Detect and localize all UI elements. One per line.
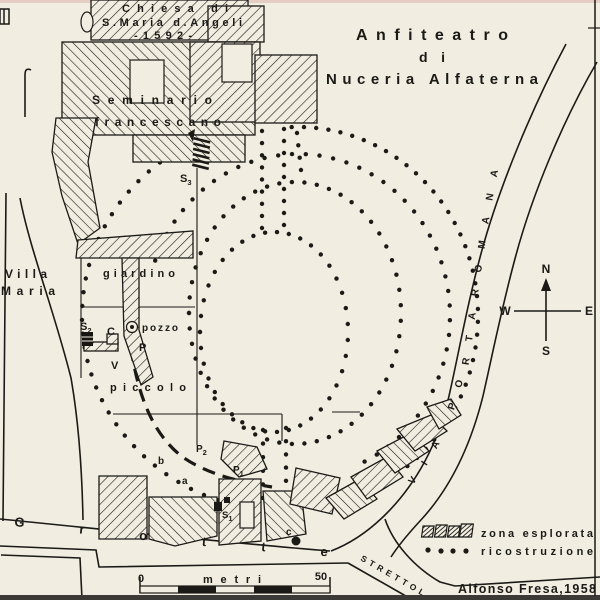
- reconstruction-dot: [295, 131, 299, 135]
- reconstruction-dot: [110, 212, 114, 216]
- reconstruction-dot: [431, 189, 435, 193]
- well-symbol: [127, 322, 138, 333]
- reconstruction-dot: [399, 303, 403, 307]
- reconstruction-dot: [349, 422, 353, 426]
- reconstruction-dot: [344, 354, 348, 358]
- reconstruction-dot: [87, 263, 91, 267]
- reconstruction-dot: [213, 396, 217, 400]
- reconstruction-dot: [334, 276, 338, 280]
- title-line-3: Nuceria Alfaterna: [326, 71, 539, 88]
- marker-a: a: [182, 476, 188, 487]
- reconstruction-dot: [253, 432, 257, 436]
- reconstruction-dot: [362, 138, 366, 142]
- reconstruction-dot: [412, 209, 416, 213]
- reconstruction-dot: [132, 444, 136, 448]
- reconstruction-dot: [436, 375, 440, 379]
- reconstruction-dot: [290, 152, 294, 156]
- reconstruction-dot: [231, 204, 235, 208]
- reconstruction-dot: [394, 349, 398, 353]
- scale-bar-body: [140, 586, 330, 593]
- reconstruction-dot: [473, 345, 477, 349]
- reconstruction-dot: [282, 223, 286, 227]
- reconstruction-dot: [206, 376, 210, 380]
- credit-label: Alfonso Fresa,1958: [458, 582, 596, 596]
- south-black-feature-2: [224, 497, 230, 503]
- reconstruction-dot: [476, 320, 480, 324]
- reconstruction-dot: [302, 180, 306, 184]
- scale-bar-segment: [178, 586, 216, 593]
- reconstruction-dot: [202, 362, 206, 366]
- reconstruction-dot: [459, 394, 463, 398]
- reconstruction-dot: [282, 187, 286, 191]
- reconstruction-dot: [240, 420, 244, 424]
- reconstruction-dot: [282, 199, 286, 203]
- reconstruction-dot: [445, 347, 449, 351]
- south-block-1: [99, 476, 147, 539]
- reconstruction-dot: [199, 314, 203, 318]
- reconstruction-dot: [309, 416, 313, 420]
- reconstruction-dot: [453, 221, 457, 225]
- reconstruction-dot: [100, 398, 104, 402]
- reconstruction-dot: [360, 413, 364, 417]
- reconstruction-dot: [349, 200, 353, 204]
- reconstruction-dot: [317, 153, 321, 157]
- reconstruction-dot: [315, 439, 319, 443]
- reconstruction-dot: [390, 258, 394, 262]
- map-page: Anfiteatro di Nuceria Alfaterna Chiesa d…: [0, 0, 600, 600]
- reconstruction-dot: [377, 390, 381, 394]
- reconstruction-dot: [338, 429, 342, 433]
- reconstruction-dot: [276, 153, 280, 157]
- reconstruction-dot: [362, 459, 366, 463]
- reconstruction-dot: [327, 187, 331, 191]
- reconstruction-dot: [439, 260, 443, 264]
- compass-south-label: S: [542, 344, 550, 358]
- reconstruction-dot: [221, 408, 225, 412]
- reconstruction-dot: [118, 200, 122, 204]
- reconstruction-dot: [201, 187, 205, 191]
- reconstruction-dot: [304, 152, 308, 156]
- reconstruction-dot: [261, 428, 265, 432]
- reconstruction-dot: [188, 295, 192, 299]
- reconstruction-dot: [463, 244, 467, 248]
- reconstruction-dot: [253, 189, 257, 193]
- reconstruction-dot: [346, 322, 350, 326]
- well-inner-dot: [130, 325, 134, 329]
- reconstruction-dot: [338, 130, 342, 134]
- south-black-feature: [214, 502, 222, 511]
- reconstruction-dot: [340, 369, 344, 373]
- reconstruction-dot: [236, 165, 240, 169]
- reconstruction-dot: [275, 230, 279, 234]
- reconstruction-dot: [260, 226, 264, 230]
- reconstruction-dot: [290, 180, 294, 184]
- reconstruction-dot: [123, 433, 127, 437]
- point-c-dot: [292, 537, 301, 546]
- reconstruction-dot: [181, 208, 185, 212]
- reconstruction-dot: [142, 454, 146, 458]
- reconstruction-dot: [443, 274, 447, 278]
- reconstruction-dot: [172, 219, 176, 223]
- reconstruction-dot: [212, 179, 216, 183]
- reconstruction-dot: [448, 303, 452, 307]
- reconstruction-dot: [441, 362, 445, 366]
- reconstruction-dot: [199, 346, 203, 350]
- reconstruction-dot: [431, 389, 435, 393]
- reconstruction-dot: [298, 423, 302, 427]
- reconstruction-dot: [360, 209, 364, 213]
- reconstruction-dot: [403, 199, 407, 203]
- reconstruction-dot: [284, 439, 288, 443]
- reconstruction-dot: [476, 307, 480, 311]
- reconstruction-dot: [390, 364, 394, 368]
- reconstruction-dot: [397, 334, 401, 338]
- reconstruction-dot: [251, 234, 255, 238]
- reconstruction-dot: [190, 342, 194, 346]
- reconstruction-dot: [290, 125, 294, 129]
- seminary-far-east-wing: [255, 55, 317, 123]
- reconstruction-dot: [189, 487, 193, 491]
- seminary-south-strip: [133, 135, 245, 162]
- reconstruction-dot: [404, 163, 408, 167]
- reconstruction-dot: [176, 480, 180, 484]
- reconstruction-dot: [420, 221, 424, 225]
- reconstruction-dot: [326, 128, 330, 132]
- scale-end-label: 50: [315, 571, 327, 583]
- reconstruction-dot: [340, 291, 344, 295]
- reconstruction-dot: [446, 289, 450, 293]
- reconstruction-dot: [434, 247, 438, 251]
- reconstruction-dot: [231, 417, 235, 421]
- reconstruction-dot: [467, 256, 471, 260]
- reconstruction-dot: [188, 326, 192, 330]
- reconstruction-dot: [392, 189, 396, 193]
- reconstruction-dot: [187, 311, 191, 315]
- reconstruction-dot: [242, 196, 246, 200]
- reconstruction-dot: [213, 225, 217, 229]
- reconstruction-dot: [284, 479, 288, 483]
- reconstruction-dot: [416, 413, 420, 417]
- marker-v: V: [111, 360, 119, 372]
- seminary-label-1: Seminario: [92, 93, 212, 107]
- reconstruction-dot: [260, 153, 264, 157]
- reconstruction-dot: [282, 163, 286, 167]
- reconstruction-dot: [338, 193, 342, 197]
- reconstruction-dot: [384, 377, 388, 381]
- reconstruction-dot: [344, 306, 348, 310]
- reconstruction-dot: [282, 127, 286, 131]
- archaeological-map: Anfiteatro di Nuceria Alfaterna Chiesa d…: [0, 0, 600, 600]
- reconstruction-dot: [260, 189, 264, 193]
- compass-west-label: W: [499, 304, 511, 318]
- reconstruction-dot: [206, 283, 210, 287]
- reconstruction-dot: [439, 199, 443, 203]
- reconstruction-dot: [397, 288, 401, 292]
- reconstruction-dot: [107, 410, 111, 414]
- reconstruction-dot: [346, 338, 350, 342]
- reconstruction-dot: [369, 402, 373, 406]
- reconstruction-dot: [475, 333, 479, 337]
- reconstruction-dot: [263, 231, 267, 235]
- reconstruction-dot: [199, 371, 203, 375]
- reconstruction-dot: [153, 258, 157, 262]
- reconstruction-dot: [114, 422, 118, 426]
- reconstruction-dot: [249, 160, 253, 164]
- reconstruction-dot: [302, 441, 306, 445]
- reconstruction-dot: [153, 463, 157, 467]
- reconstruction-dot: [284, 452, 288, 456]
- reconstruction-dot: [314, 126, 318, 130]
- reconstruction-dot: [84, 276, 88, 280]
- compass-north-label: N: [542, 262, 551, 276]
- reconstruction-dot: [309, 243, 313, 247]
- reconstruction-dot: [282, 175, 286, 179]
- marker-c-upper: C: [107, 326, 115, 338]
- reconstruction-dot: [81, 290, 85, 294]
- reconstruction-dot: [147, 169, 151, 173]
- scale-bar-segment: [254, 586, 292, 593]
- reconstruction-dot: [384, 149, 388, 153]
- reconstruction-dot: [424, 401, 428, 405]
- reconstruction-dot: [213, 390, 217, 394]
- reconstruction-dot: [275, 430, 279, 434]
- reconstruction-dot: [205, 384, 209, 388]
- reconstruction-dot: [394, 273, 398, 277]
- seminary-label-2: francescano: [95, 115, 221, 129]
- reconstruction-dot: [282, 139, 286, 143]
- reconstruction-dot: [373, 143, 377, 147]
- reconstruction-dot: [190, 197, 194, 201]
- reconstruction-dot: [103, 224, 107, 228]
- reconstruction-dot: [260, 177, 264, 181]
- reconstruction-dot: [265, 437, 269, 441]
- reconstruction-dot: [414, 171, 418, 175]
- south-block-2: [149, 497, 217, 546]
- reconstruction-dot: [136, 179, 140, 183]
- reconstruction-dot: [394, 156, 398, 160]
- reconstruction-dot: [260, 129, 264, 133]
- reconstruction-dot: [251, 426, 255, 430]
- reconstruction-dot: [198, 330, 202, 334]
- reconstruction-dot: [221, 402, 225, 406]
- reconstruction-dot: [299, 168, 303, 172]
- reconstruction-dot: [327, 396, 331, 400]
- reconstruction-dot: [85, 359, 89, 363]
- reconstruction-dot: [446, 210, 450, 214]
- reconstruction-dot: [399, 319, 403, 323]
- reconstruction-dot: [377, 231, 381, 235]
- reconstruction-dot: [284, 465, 288, 469]
- reconstruction-dot: [319, 407, 323, 411]
- reconstruction-dot: [127, 189, 131, 193]
- reconstruction-dot: [282, 151, 286, 155]
- reconstruction-dot: [221, 214, 225, 218]
- south-white-passage: [240, 502, 254, 528]
- reconstruction-dot: [287, 232, 291, 236]
- reconstruction-dot: [260, 214, 264, 218]
- reconstruction-dot: [277, 440, 281, 444]
- reconstruction-dot: [458, 232, 462, 236]
- reconstruction-dot: [205, 238, 209, 242]
- compass-east-label: E: [585, 304, 593, 318]
- legend-explored-label: zona esplorata: [481, 528, 594, 540]
- reconstruction-dot: [242, 426, 246, 430]
- reconstruction-dot: [331, 156, 335, 160]
- reconstruction-dot: [428, 233, 432, 237]
- reconstruction-dot: [240, 240, 244, 244]
- reconstruction-dot: [423, 180, 427, 184]
- reconstruction-dot: [261, 441, 265, 445]
- reconstruction-dot: [199, 251, 203, 255]
- reconstruction-dot: [448, 318, 452, 322]
- marker-b: b: [158, 456, 164, 467]
- reconstruction-dot: [319, 252, 323, 256]
- reconstruction-dot: [284, 426, 288, 430]
- reconstruction-dot: [89, 372, 93, 376]
- seminary-east-courtyard: [222, 44, 252, 82]
- reconstruction-dot: [350, 134, 354, 138]
- scale-start-label: 0: [138, 573, 144, 585]
- marker-c-lower: c: [286, 527, 292, 538]
- reconstruction-dot: [369, 172, 373, 176]
- reconstruction-dot: [260, 202, 264, 206]
- reconstruction-dot: [296, 143, 300, 147]
- reconstruction-dot: [298, 236, 302, 240]
- scan-edge-top: [0, 0, 600, 3]
- reconstruction-dot: [357, 166, 361, 170]
- reconstruction-dot: [94, 385, 98, 389]
- villa-label-1: Villa: [5, 267, 47, 281]
- reconstruction-dot: [302, 125, 306, 129]
- reconstruction-dot: [298, 156, 302, 160]
- reconstruction-dot: [230, 248, 234, 252]
- reconstruction-dot: [468, 370, 472, 374]
- reconstruction-dot: [164, 472, 168, 476]
- reconstruction-dot: [260, 165, 264, 169]
- reconstruction-dot: [190, 280, 194, 284]
- reconstruction-dot: [224, 171, 228, 175]
- reconstruction-dot: [344, 160, 348, 164]
- church-apse: [81, 12, 93, 32]
- reconstruction-dot: [213, 270, 217, 274]
- reconstruction-dot: [290, 442, 294, 446]
- church-label-1: Chiesa di: [122, 3, 228, 15]
- reconstruction-dot: [384, 244, 388, 248]
- reconstruction-dot: [334, 383, 338, 387]
- reconstruction-dot: [369, 220, 373, 224]
- reconstruction-dot: [447, 333, 451, 337]
- marker-p: P: [139, 342, 146, 354]
- reconstruction-dot: [282, 211, 286, 215]
- well-label: pozzo: [142, 323, 178, 334]
- reconstruction-dot: [202, 298, 206, 302]
- reconstruction-dot: [221, 258, 225, 262]
- reconstruction-dot: [260, 141, 264, 145]
- reconstruction-dot: [327, 264, 331, 268]
- reconstruction-dot: [277, 181, 281, 185]
- reconstruction-dot: [265, 184, 269, 188]
- reconstruction-dot: [315, 183, 319, 187]
- reconstruction-dot: [327, 435, 331, 439]
- reconstruction-dot: [381, 180, 385, 184]
